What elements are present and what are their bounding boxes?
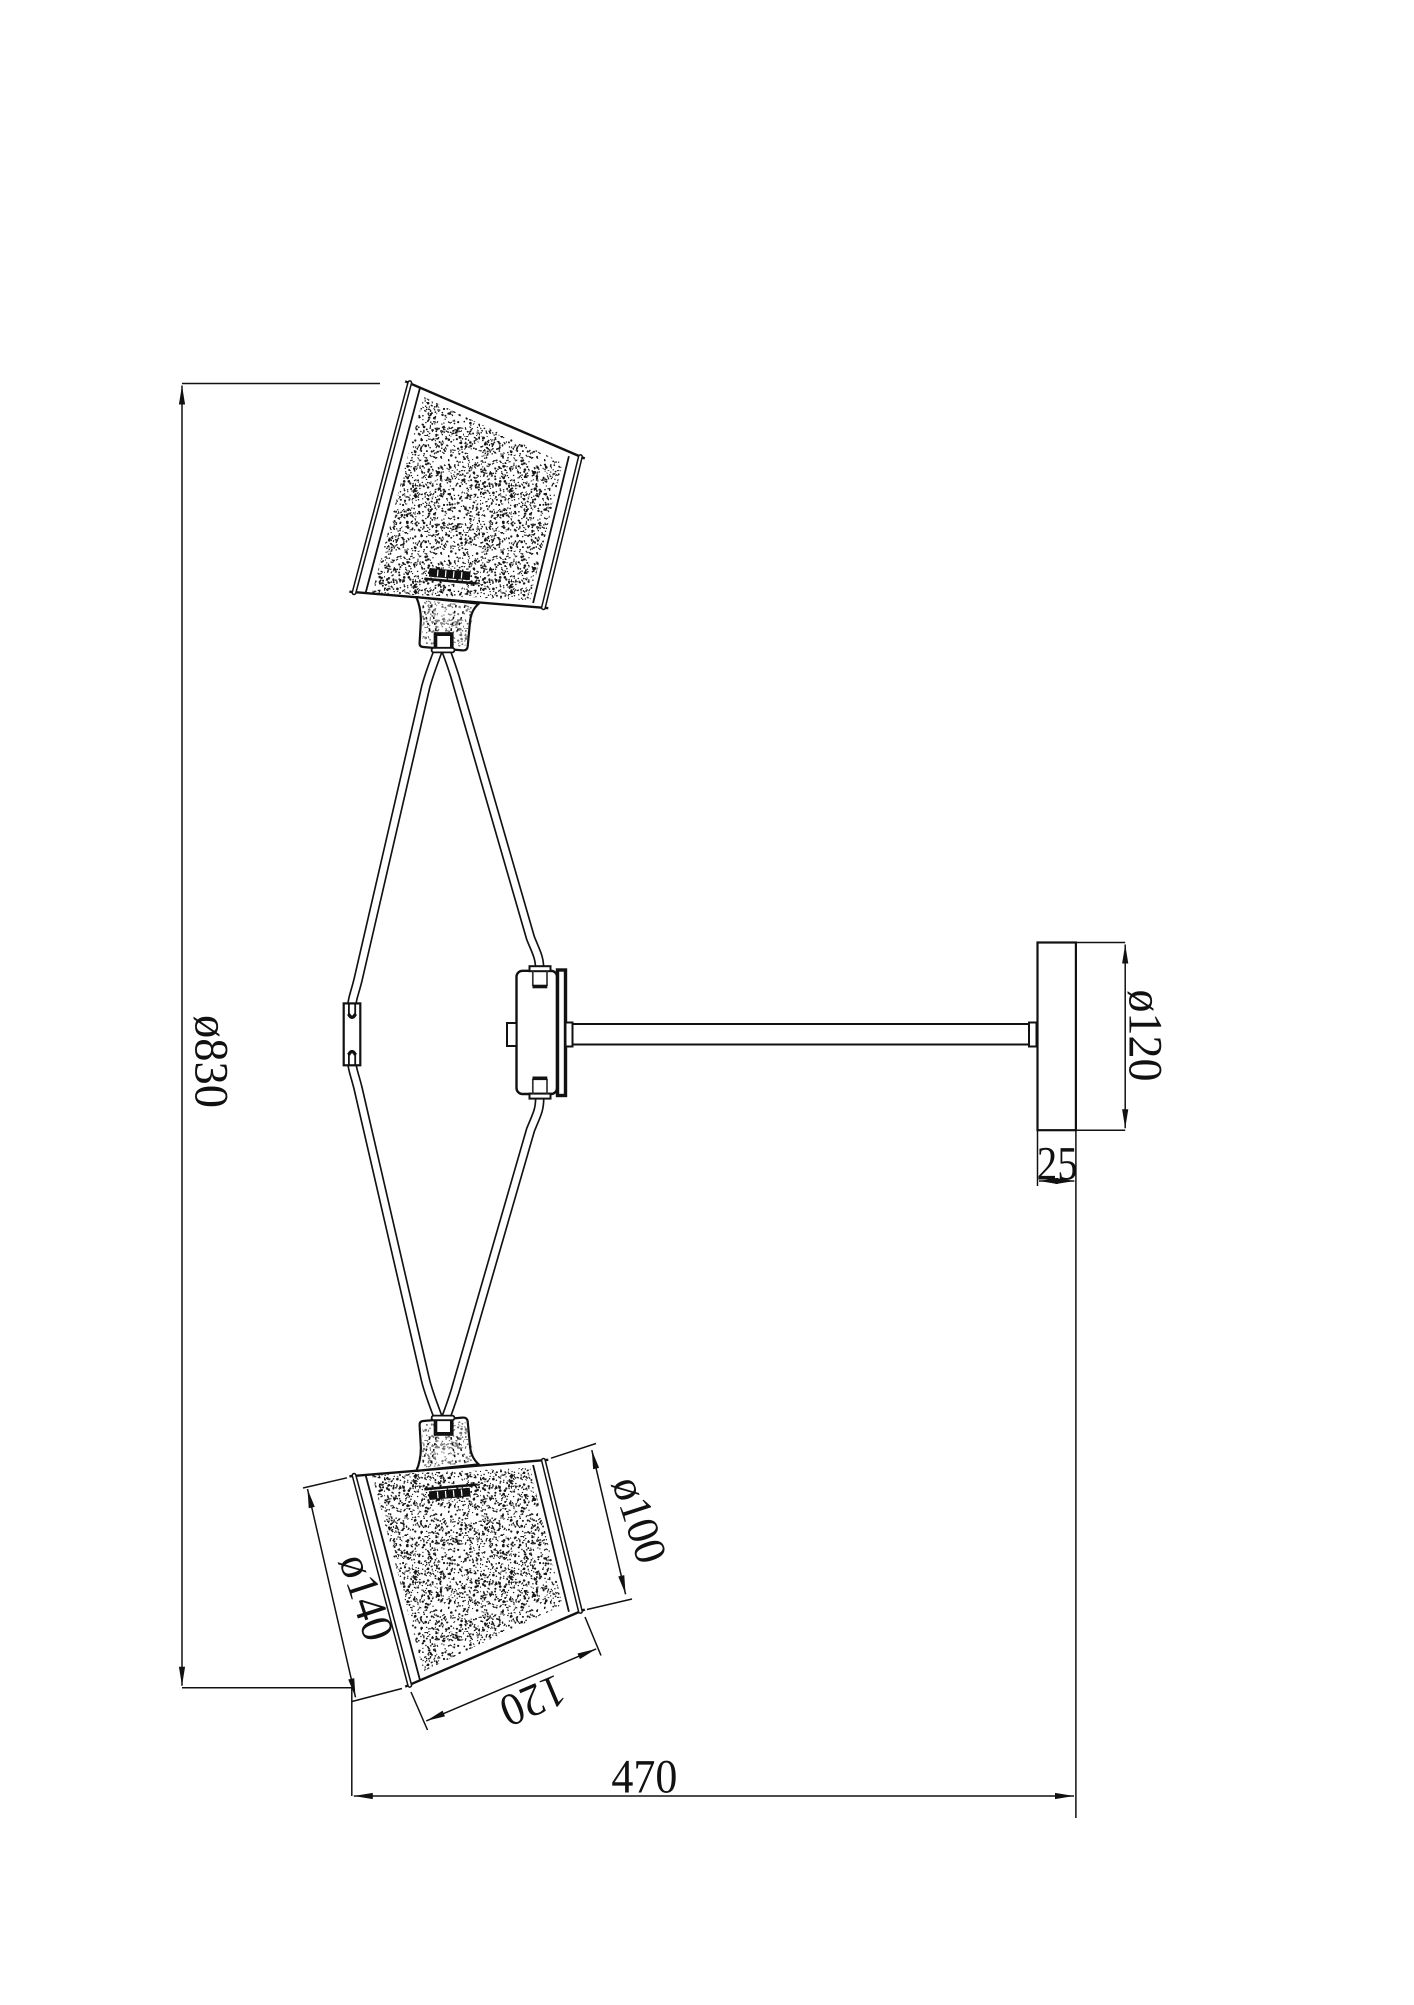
svg-text:470: 470 xyxy=(611,1750,677,1803)
svg-text:ø830: ø830 xyxy=(185,1015,238,1108)
svg-text:ø120: ø120 xyxy=(1119,990,1172,1082)
svg-text:25: 25 xyxy=(1037,1138,1078,1191)
